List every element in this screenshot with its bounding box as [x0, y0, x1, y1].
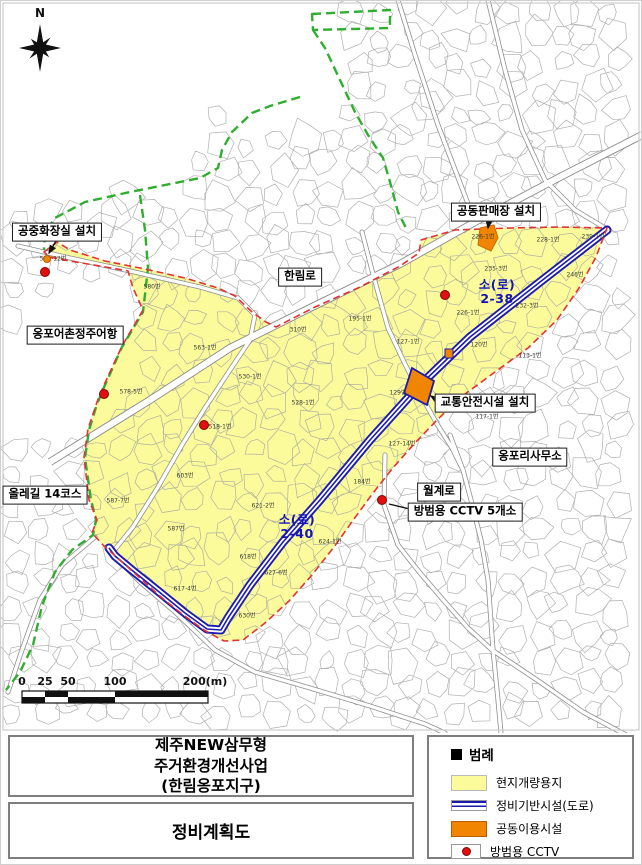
project-title-line2: 주거환경개선사업	[154, 756, 268, 776]
legend-label: 방범용 CCTV	[490, 843, 559, 860]
project-title-box: 제주NEW삼무형 주거환경개선사업 (한림옹포지구)	[8, 735, 414, 797]
plan-map: N 550-12번580번563-1번578-5번530-1번528-1번518…	[0, 0, 642, 733]
small-facility	[445, 349, 453, 358]
road-infrastructure-swatch	[451, 800, 487, 811]
legend-item-improvement-area: 현지개량용지	[451, 774, 562, 791]
label-wolgye-ro: 월계로	[417, 483, 461, 502]
legend-square-icon	[451, 749, 462, 760]
legend-label: 현지개량용지	[496, 774, 562, 791]
compass-rose	[19, 24, 61, 72]
label-cctv-five: 방범용 CCTV 5개소	[408, 503, 523, 522]
label-joint-market: 공동판매장 설치	[451, 203, 541, 222]
legend-item-cctv: 방범용 CCTV	[451, 843, 559, 860]
road-label-2-38: 소(로) 2-38	[479, 278, 515, 306]
project-title-line1: 제주NEW삼무형	[155, 735, 267, 755]
map-canvas	[0, 0, 642, 733]
drawing-title-box: 정비계획도	[8, 802, 414, 859]
public-toilet-marker	[43, 255, 51, 263]
label-ongpo-ri-office: 옹포리사무소	[492, 448, 567, 467]
cctv-swatch	[451, 844, 481, 859]
improvement-area	[44, 227, 607, 641]
legend-header-label: 범례	[469, 744, 494, 764]
legend-item-community-facility: 공동이용시설	[451, 820, 562, 837]
label-hallim-ro: 한림로	[278, 268, 322, 287]
scale-bar	[22, 691, 208, 703]
compass-north-label: N	[35, 6, 45, 20]
legend-label: 정비기반시설(도로)	[496, 797, 594, 814]
cctv-dot-icon	[462, 847, 471, 856]
road-label-2-40: 소(로) 2-40	[279, 513, 315, 541]
label-fishing-port: 옹포어촌정주어항	[27, 326, 124, 345]
legend: 범례 현지개량용지 정비기반시설(도로) 공동이용시설 방범용 CCTV	[427, 735, 634, 859]
plan-map-page: { "map": { "compass_label": "N", "labels…	[0, 0, 642, 865]
label-traffic-safety: 교통안전시설 설치	[435, 394, 536, 413]
legend-item-road-infrastructure: 정비기반시설(도로)	[451, 797, 594, 814]
label-olle-trail: 올레길 14코스	[3, 486, 88, 505]
drawing-title: 정비계획도	[172, 818, 250, 843]
project-title-line3: (한림옹포지구)	[161, 776, 261, 796]
community-facility-swatch	[451, 821, 487, 837]
legend-label: 공동이용시설	[496, 820, 562, 837]
improvement-area-swatch	[451, 775, 487, 791]
legend-header: 범례	[451, 744, 494, 764]
label-public-toilet: 공중화장실 설치	[12, 223, 102, 242]
